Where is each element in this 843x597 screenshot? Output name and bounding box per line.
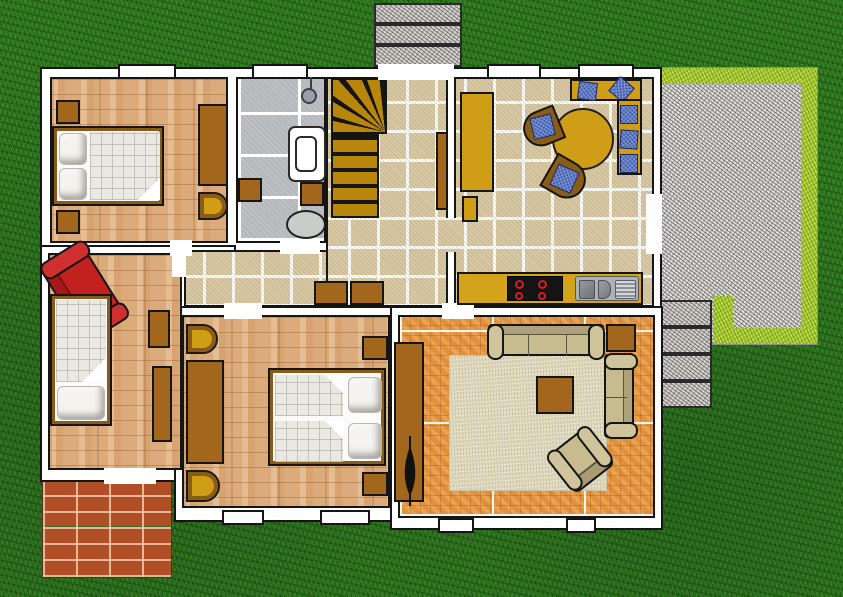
pillow [59,133,87,165]
front-door-opening [378,64,454,80]
shower-hose [310,77,312,89]
sofa-two-seat [604,354,634,438]
bench-cushion [619,129,638,149]
staircase [331,78,387,218]
terrace-hedge-notch [713,296,733,344]
brick-patio [42,479,172,578]
hall-floor [184,250,326,307]
door-bedroom2-hall [224,303,262,319]
door-study-patio [104,468,156,484]
double-bed [52,126,164,206]
bench-cushion [620,154,638,173]
window-living-2 [566,518,596,533]
duvet [275,421,343,462]
walkway-slab [374,3,462,24]
duvet [90,132,160,200]
cooktop [507,276,563,301]
stair-winder [331,78,387,134]
double-bed [268,368,386,466]
window-bedroom2-2 [320,510,370,525]
nightstand [362,336,388,360]
bench-cushion [620,105,638,124]
nightstand [56,210,80,234]
shower-icon [301,88,317,104]
small-cabinet [462,196,478,222]
toilet [286,210,326,239]
hall-dining-wall-lower [446,252,456,307]
terrace-hedge-top [653,68,817,84]
bath-cabinet [300,182,324,206]
window-bedroom2-1 [222,510,264,525]
window-dining-2 [578,64,634,79]
half-round-chair [186,324,218,354]
tall-cabinet [460,92,494,192]
hall-cabinet [350,281,384,305]
kitchen-sink [575,276,639,301]
door-study-hall [172,253,186,277]
window-bedroom1 [118,64,176,79]
sofa-three-seat [488,324,604,356]
hall-cabinet [314,281,348,305]
hall-sideboard [436,132,448,210]
wardrobe [198,104,228,186]
side-table [606,324,636,352]
door-bathroom-hall [280,240,320,254]
corner-bench-right [617,99,642,175]
shelf [152,366,172,442]
window-bathroom [252,64,308,79]
walkway-slab [374,24,462,45]
half-round-chair [186,470,220,502]
bench-cushion [577,81,598,101]
terrace-door-opening [646,194,662,254]
pillow [59,168,87,200]
terrace-hedge-right [801,68,817,344]
duvet [275,375,343,416]
bath-cabinet [238,178,262,202]
corner-bench-top [570,79,642,101]
desk [148,310,170,348]
window-living-1 [438,518,474,533]
door-living-kitchen [442,303,474,319]
pillow [348,377,382,413]
plant-leaf-icon [399,436,421,506]
nightstand [362,472,388,496]
single-bed [50,294,112,426]
bathtub [288,126,326,182]
pillow [57,386,105,420]
floor-plan-scene [0,0,843,597]
coffee-table [536,376,574,414]
kitchen-counter [457,272,643,305]
sideboard [394,342,424,502]
blanket [56,300,106,382]
nightstand [56,100,80,124]
window-dining-1 [487,64,541,79]
wardrobe [186,360,224,464]
stair-flight [331,134,379,218]
front-walkway [374,3,462,67]
half-round-chair [198,192,228,220]
pillow [348,423,382,459]
